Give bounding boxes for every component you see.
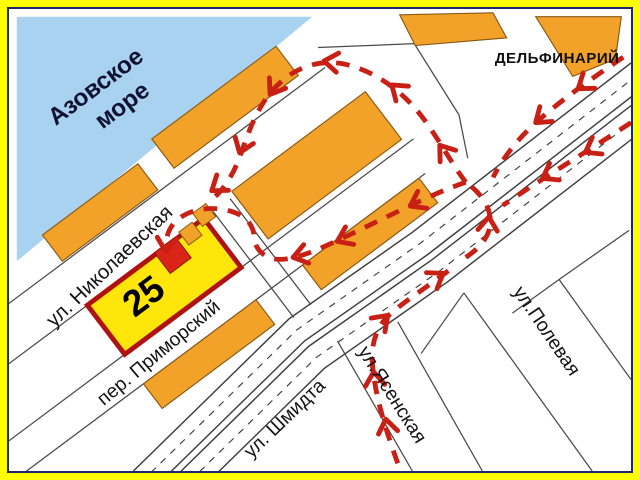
block-edge-ne: [559, 230, 629, 279]
cross-streets: [337, 230, 631, 471]
map-frame: 25: [0, 0, 640, 480]
route-entry-nw: [493, 57, 623, 177]
dolphinarium-building: [536, 17, 622, 77]
top-building-1: [400, 13, 507, 46]
yasenskaya-se-edge: [398, 322, 483, 471]
block-corner-a: [421, 293, 464, 354]
street-label-yasenskaya: ул.Ясенская: [353, 342, 431, 447]
dolphinarium-label: ДЕЛЬФИНАРИЙ: [495, 49, 620, 67]
city-map: 25: [9, 9, 631, 471]
street-label-shmidta: ул. Шмидта: [240, 375, 331, 463]
street-label-polevaya: ул.Полевая: [508, 282, 584, 380]
map-inner-border: 25: [7, 7, 633, 473]
